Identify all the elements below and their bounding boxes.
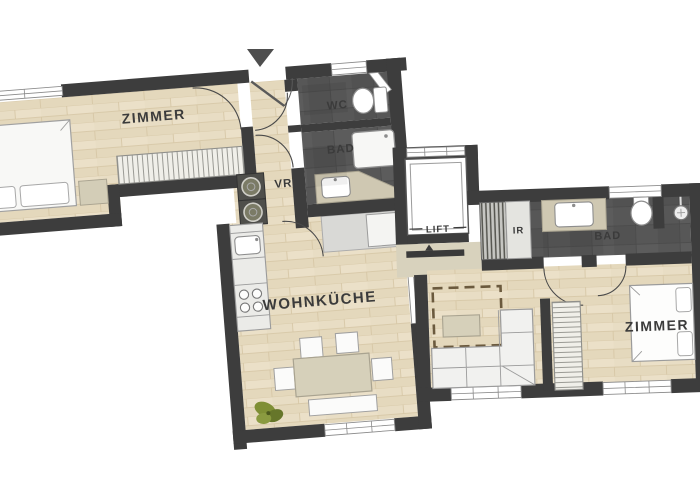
washer-dryer-stack bbox=[237, 173, 268, 226]
window-wc-top bbox=[331, 61, 367, 75]
pillow bbox=[676, 287, 692, 312]
label-lift: LIFT bbox=[426, 224, 450, 236]
chair bbox=[371, 357, 393, 381]
label-right-bedroom: ZIMMER bbox=[625, 317, 690, 335]
chair bbox=[274, 367, 296, 391]
label-right-bathroom: BAD bbox=[594, 230, 621, 243]
nightstand bbox=[79, 179, 109, 205]
label-left-wc: WC bbox=[326, 99, 348, 113]
lift-core: LIFT bbox=[393, 145, 482, 278]
floor-plan-svg: ZIMMER WC BAD VR WOHNKÜCHE LIFT bbox=[0, 0, 700, 500]
dining-table bbox=[293, 353, 372, 397]
pillow bbox=[0, 186, 16, 211]
coffee-table bbox=[442, 315, 480, 337]
right-apartment: LIFT bbox=[393, 137, 700, 403]
pillow bbox=[677, 331, 693, 356]
utility-niche: IR bbox=[480, 201, 532, 260]
entrance-arrow-icon bbox=[247, 49, 274, 67]
label-left-bathroom: BAD bbox=[327, 143, 356, 157]
floor-plan-canvas: ZIMMER WC BAD VR WOHNKÜCHE LIFT bbox=[0, 0, 700, 500]
left-apartment: ZIMMER WC BAD VR WOHNKÜCHE bbox=[0, 57, 436, 469]
label-left-hall: VR bbox=[274, 178, 293, 191]
shower-left-icon bbox=[352, 129, 397, 168]
toilet-left-icon bbox=[352, 86, 388, 114]
wardrobe-right bbox=[552, 301, 583, 390]
sink-right-bathroom bbox=[542, 198, 607, 231]
chair bbox=[300, 337, 324, 359]
window-right-bedroom-bottom bbox=[603, 380, 671, 394]
label-utility: IR bbox=[513, 225, 525, 236]
radiator-icon bbox=[480, 202, 508, 260]
window-right-bathroom bbox=[609, 185, 661, 198]
chair bbox=[335, 332, 359, 354]
pillow bbox=[20, 182, 69, 207]
